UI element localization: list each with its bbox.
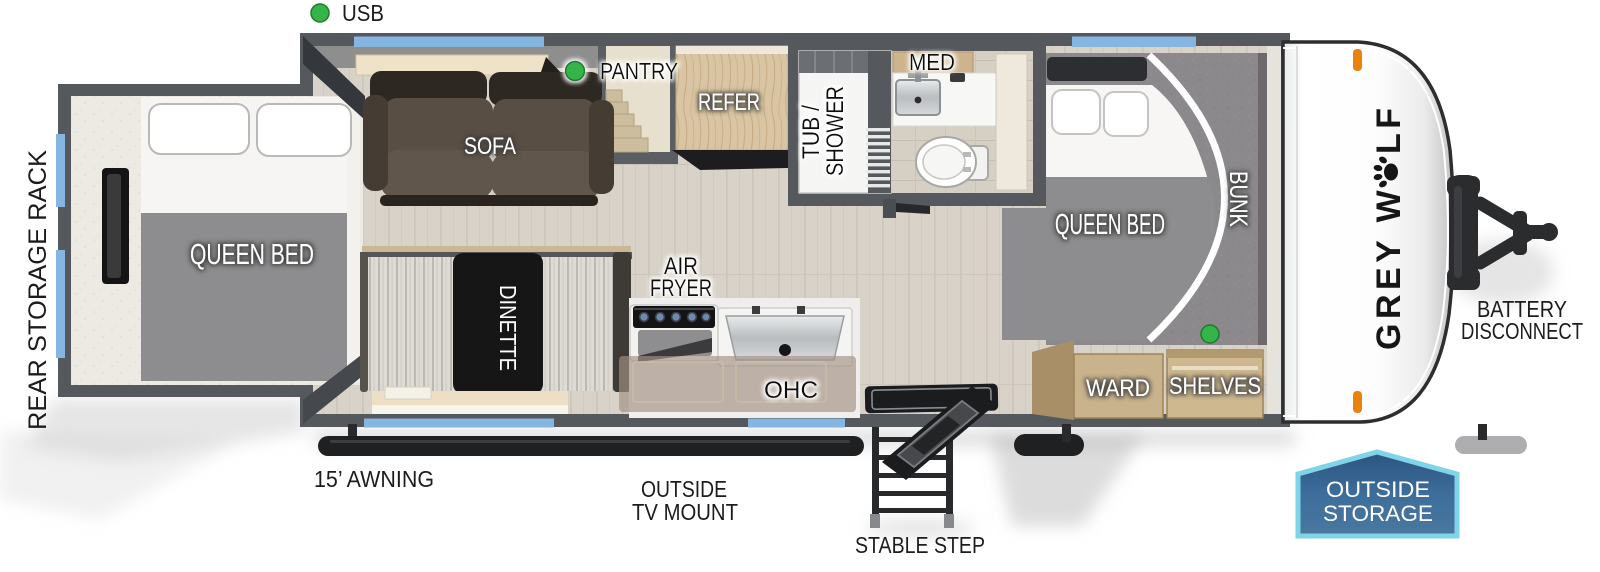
- svg-text:OHC: OHC: [764, 377, 818, 404]
- svg-text:BUNK: BUNK: [1224, 171, 1252, 227]
- svg-text:DISCONNECT: DISCONNECT: [1461, 318, 1583, 344]
- svg-text:WARD: WARD: [1086, 375, 1150, 402]
- svg-text:15’ AWNING: 15’ AWNING: [314, 466, 434, 492]
- svg-text:OUTSIDE: OUTSIDE: [1326, 477, 1430, 502]
- svg-text:QUEEN BED: QUEEN BED: [1055, 209, 1165, 241]
- svg-text:QUEEN BED: QUEEN BED: [190, 239, 314, 271]
- svg-text:MED: MED: [909, 49, 955, 75]
- svg-text:REAR STORAGE RACK: REAR STORAGE RACK: [24, 150, 52, 430]
- svg-text:REFER: REFER: [698, 89, 760, 116]
- svg-text:USB: USB: [342, 0, 384, 26]
- svg-text:PANTRY: PANTRY: [600, 58, 678, 84]
- svg-text:STORAGE: STORAGE: [1323, 501, 1433, 526]
- svg-text:SOFA: SOFA: [464, 133, 516, 160]
- svg-text:TV MOUNT: TV MOUNT: [632, 499, 738, 525]
- svg-text:GREY W: GREY W: [1370, 186, 1408, 350]
- svg-text:SHOWER: SHOWER: [822, 86, 849, 176]
- svg-text:TUB /: TUB /: [798, 105, 825, 159]
- svg-text:STABLE STEP: STABLE STEP: [855, 532, 985, 558]
- svg-text:LF: LF: [1370, 103, 1408, 154]
- svg-text:DINETTE: DINETTE: [495, 285, 521, 371]
- svg-text:FRYER: FRYER: [650, 275, 712, 302]
- svg-text:SHELVES: SHELVES: [1169, 373, 1261, 400]
